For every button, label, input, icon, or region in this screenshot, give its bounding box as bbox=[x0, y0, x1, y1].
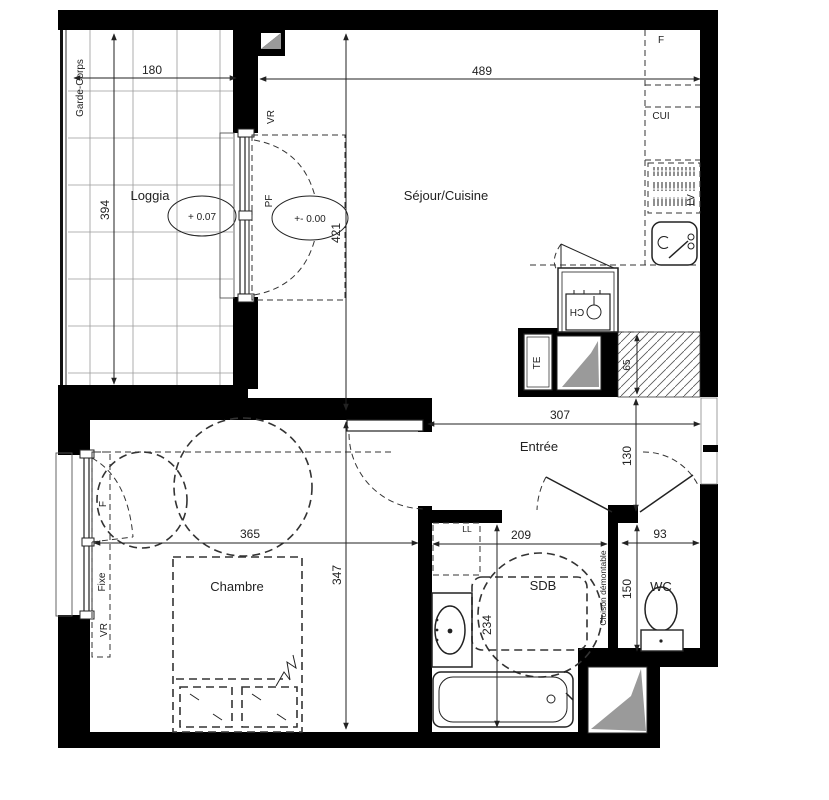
wall-loggia-divider-upper bbox=[233, 10, 258, 133]
dim-entree-h: 130 bbox=[620, 446, 634, 466]
wall-chambre-west-lower bbox=[58, 615, 90, 748]
garde-corps-rail-inner bbox=[65, 30, 67, 385]
wall-top bbox=[58, 10, 718, 30]
wall-shaft-left bbox=[578, 655, 588, 733]
chambre-door-leaf bbox=[347, 420, 423, 431]
sink-faucet bbox=[669, 241, 688, 258]
wc-door-swing bbox=[643, 452, 699, 487]
wall-sdb-west bbox=[418, 506, 432, 747]
closet-door-leaf bbox=[561, 244, 616, 269]
wall-chambre-west-upper bbox=[58, 385, 90, 455]
wc-door-leaf bbox=[640, 475, 693, 512]
dim-wc-h: 150 bbox=[620, 579, 634, 599]
dim-wc-w: 93 bbox=[653, 527, 667, 541]
sdb-fixtures bbox=[432, 523, 602, 727]
ll-label: LL bbox=[462, 524, 472, 534]
pillow-left-ticks bbox=[190, 694, 222, 720]
wall-shaft-right bbox=[647, 655, 660, 733]
entrance-frame-mid bbox=[703, 445, 718, 452]
closet-door bbox=[554, 244, 616, 270]
dim-chambre-w: 365 bbox=[240, 527, 260, 541]
sdb-door-leaf bbox=[546, 477, 612, 512]
wall-right-lower bbox=[700, 484, 718, 667]
sejour-level: +- 0.00 bbox=[294, 214, 326, 225]
entree-label: Entrée bbox=[520, 439, 558, 454]
dim-loggia-w: 180 bbox=[142, 63, 162, 77]
sink-tap-1 bbox=[688, 234, 694, 240]
pf-mullion bbox=[239, 211, 252, 220]
closet-door-swing bbox=[554, 244, 561, 270]
entrance-opening bbox=[701, 398, 718, 484]
chambre-casement-chord bbox=[92, 537, 133, 542]
wall-chambre-north bbox=[58, 398, 432, 420]
blanket-squiggle bbox=[276, 655, 296, 686]
chambre-window-sill bbox=[56, 453, 72, 616]
pillow-left bbox=[180, 687, 232, 727]
dishwasher-grill-1 bbox=[652, 167, 696, 176]
sdb-label: SDB bbox=[530, 578, 557, 593]
pillow-right bbox=[242, 687, 297, 727]
wall-bottom bbox=[58, 732, 660, 748]
washbasin bbox=[432, 593, 472, 667]
toilet bbox=[641, 587, 683, 651]
fridge-label: F bbox=[658, 35, 664, 46]
wc-label: WC bbox=[650, 579, 672, 594]
shaft-bottom-right bbox=[588, 667, 647, 733]
corner-column bbox=[258, 30, 285, 56]
cui-label: CUI bbox=[652, 111, 669, 122]
floor-plan-page: Garde-Corps Loggia + 0.07 VR PF +- 0.00 … bbox=[0, 0, 829, 800]
entrance-frame bbox=[701, 398, 717, 484]
chambre-label: Chambre bbox=[210, 579, 263, 594]
wc-door bbox=[640, 452, 699, 512]
dim-sejour-w: 489 bbox=[472, 64, 492, 78]
wall-right-upper bbox=[700, 30, 718, 397]
sdb-door-swing bbox=[537, 477, 546, 510]
window-f-label: F bbox=[98, 501, 109, 507]
dim-shaft-h: 65 bbox=[622, 359, 633, 371]
chambre-casement-swing bbox=[92, 458, 133, 537]
sink-drain bbox=[658, 237, 668, 249]
chambre-door bbox=[347, 420, 424, 509]
pillow-right-ticks bbox=[252, 694, 286, 720]
vr-left-label: VR bbox=[99, 623, 110, 637]
bathtub-outer bbox=[433, 672, 573, 727]
kitchen bbox=[530, 30, 700, 332]
wall-sdb-north bbox=[422, 510, 502, 523]
dim-sejour-h: 421 bbox=[329, 223, 343, 243]
garde-corps-rail-outer bbox=[60, 30, 63, 385]
ch-label: CH bbox=[570, 306, 584, 317]
chambre-door-swing bbox=[349, 434, 424, 509]
dim-sdb-w: 209 bbox=[511, 528, 531, 542]
dishwasher-grill-2 bbox=[652, 182, 696, 191]
cloison-label: Cloison démontable bbox=[598, 550, 608, 625]
chambre-furniture bbox=[95, 418, 395, 732]
pf-label: PF bbox=[264, 195, 275, 208]
fixe-label: Fixe bbox=[97, 572, 108, 591]
washbasin-drain bbox=[448, 629, 453, 634]
vr-top-label: VR bbox=[266, 110, 277, 124]
floor-plan-drawing: Garde-Corps Loggia + 0.07 VR PF +- 0.00 … bbox=[0, 0, 829, 800]
loggia bbox=[60, 30, 236, 385]
dim-loggia-h: 394 bbox=[98, 200, 112, 220]
wall-cloison-demontable bbox=[608, 523, 618, 655]
sink-tap-2 bbox=[688, 243, 694, 249]
bathtub-drain bbox=[547, 695, 555, 703]
te-label: TE bbox=[532, 356, 543, 369]
dim-chambre-h: 347 bbox=[330, 565, 344, 585]
wall-loggia-divider-lower bbox=[233, 297, 258, 389]
sejour-label: Séjour/Cuisine bbox=[404, 188, 489, 203]
garde-corps-label: Garde-Corps bbox=[75, 59, 86, 117]
lv-label: LV bbox=[686, 194, 697, 206]
washing-machine-outline bbox=[433, 523, 480, 575]
loggia-level: + 0.07 bbox=[188, 212, 217, 223]
loggia-tile-grid bbox=[68, 30, 233, 385]
dim-entree-w: 307 bbox=[550, 408, 570, 422]
chambre-window-glazing bbox=[84, 457, 89, 613]
toilet-button bbox=[659, 639, 662, 642]
bathtub bbox=[433, 672, 573, 727]
water-heater-closet bbox=[558, 268, 618, 332]
dim-sdb-h: 234 bbox=[480, 615, 494, 635]
kitchen-sink bbox=[652, 222, 697, 265]
bathtub-inner bbox=[439, 677, 567, 722]
pf-sill bbox=[220, 133, 234, 298]
wall-stub-cloison-top bbox=[608, 505, 638, 523]
pf-window-loggia bbox=[220, 129, 348, 302]
sdb-door bbox=[537, 477, 612, 512]
loggia-label: Loggia bbox=[130, 188, 170, 203]
